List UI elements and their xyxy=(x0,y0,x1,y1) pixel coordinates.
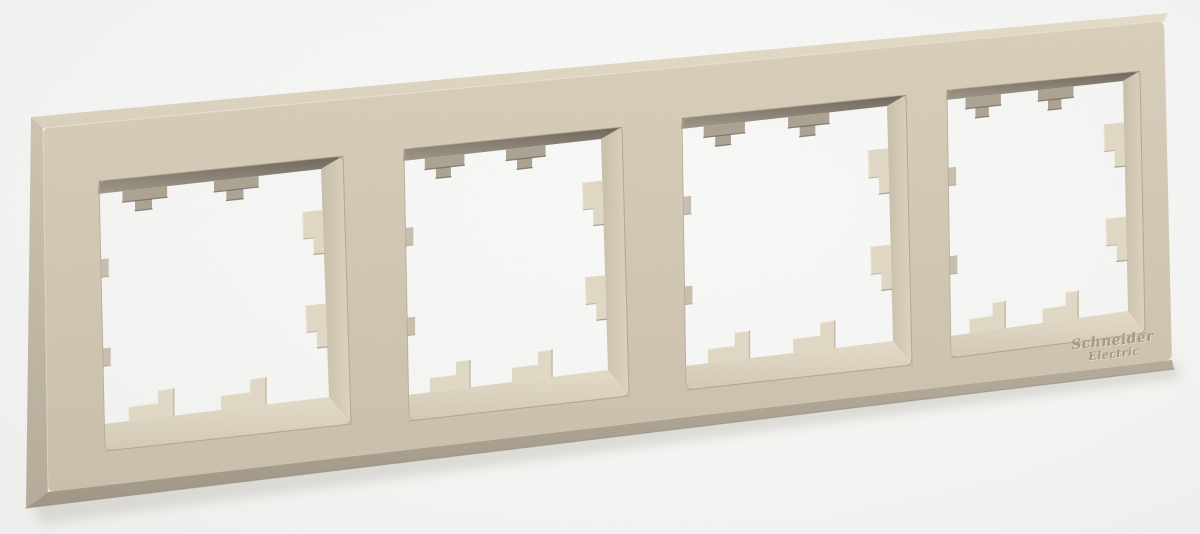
product-photo: SchneiderElectricSchneiderElectric xyxy=(0,0,1200,534)
photo-grain xyxy=(0,0,1200,534)
frame-photo-svg: SchneiderElectricSchneiderElectric xyxy=(0,0,1200,534)
